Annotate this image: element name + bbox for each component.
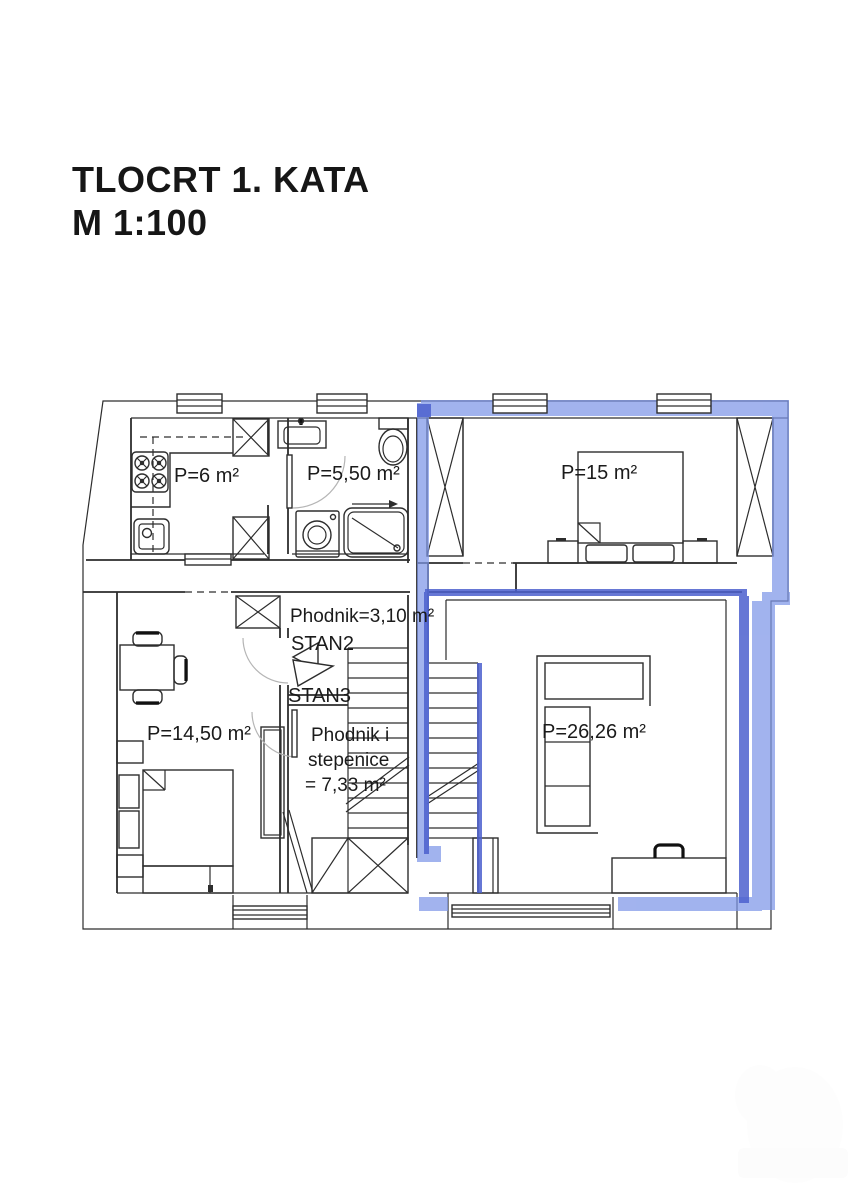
- watermark: [735, 1065, 848, 1183]
- room-label-room-south: P=14,50 m²: [147, 723, 251, 745]
- window: [493, 394, 547, 413]
- room-label-bathroom: P=5,50 m²: [307, 463, 400, 485]
- kitchen-counter-icon: [612, 845, 726, 893]
- chimney-shaft: [737, 418, 773, 556]
- window: [452, 905, 610, 917]
- window: [233, 906, 307, 919]
- bed-icon: [117, 741, 233, 893]
- title-line-2: M 1:100: [72, 202, 208, 243]
- chimney-shaft: [236, 596, 280, 628]
- sofa-unit-icon: [537, 656, 650, 833]
- window: [657, 394, 711, 413]
- nightstand-icon: [683, 538, 717, 563]
- room-label-living: P=26,26 m²: [542, 721, 646, 743]
- plan-title: TLOCRT 1. KATA M 1:100: [72, 159, 370, 243]
- nightstand-icon: [548, 538, 578, 563]
- label-stan3: STAN3: [288, 685, 351, 707]
- floor-plan-page: TLOCRT 1. KATA M 1:100 P=6 m² P=5,50 m² …: [0, 0, 848, 1200]
- label-stan2: STAN2: [291, 633, 354, 655]
- room-south-furniture: [117, 632, 284, 893]
- washing-machine-icon: [296, 511, 339, 557]
- title-line-1: TLOCRT 1. KATA: [72, 159, 370, 200]
- window: [317, 394, 367, 413]
- door-leaf: [292, 710, 297, 757]
- room-label-kitchen: P=6 m²: [174, 465, 239, 487]
- bathtub-icon: [344, 500, 408, 557]
- chimney-shaft: [233, 517, 269, 559]
- kitchen-sink-icon: [134, 519, 169, 554]
- window: [185, 554, 231, 565]
- living-furniture: [537, 656, 726, 893]
- room-label-bedroom: P=15 m²: [561, 462, 637, 484]
- stove-icon: [132, 452, 168, 492]
- room-label-hall-stairs-2: stepenice: [308, 750, 389, 771]
- stair-landing: [473, 838, 498, 893]
- washbasin-icon: [278, 419, 326, 449]
- bathroom-furniture: [278, 418, 408, 557]
- dining-table-icon: [120, 632, 187, 704]
- room-label-hallway: Phodnik=3,10 m²: [290, 606, 434, 627]
- room-label-hall-stairs-3: = 7,33 m²: [305, 775, 386, 796]
- floor-plan-drawing: TLOCRT 1. KATA M 1:100 P=6 m² P=5,50 m² …: [0, 0, 848, 1200]
- window: [177, 394, 222, 413]
- toilet-icon: [379, 418, 408, 465]
- kitchen-furniture: [131, 437, 245, 554]
- chimney-shaft: [427, 418, 463, 556]
- room-label-hall-stairs-1: Phodnik i: [311, 725, 389, 746]
- chimney-shafts: [233, 418, 773, 628]
- entry-roof-hatch: [312, 838, 408, 893]
